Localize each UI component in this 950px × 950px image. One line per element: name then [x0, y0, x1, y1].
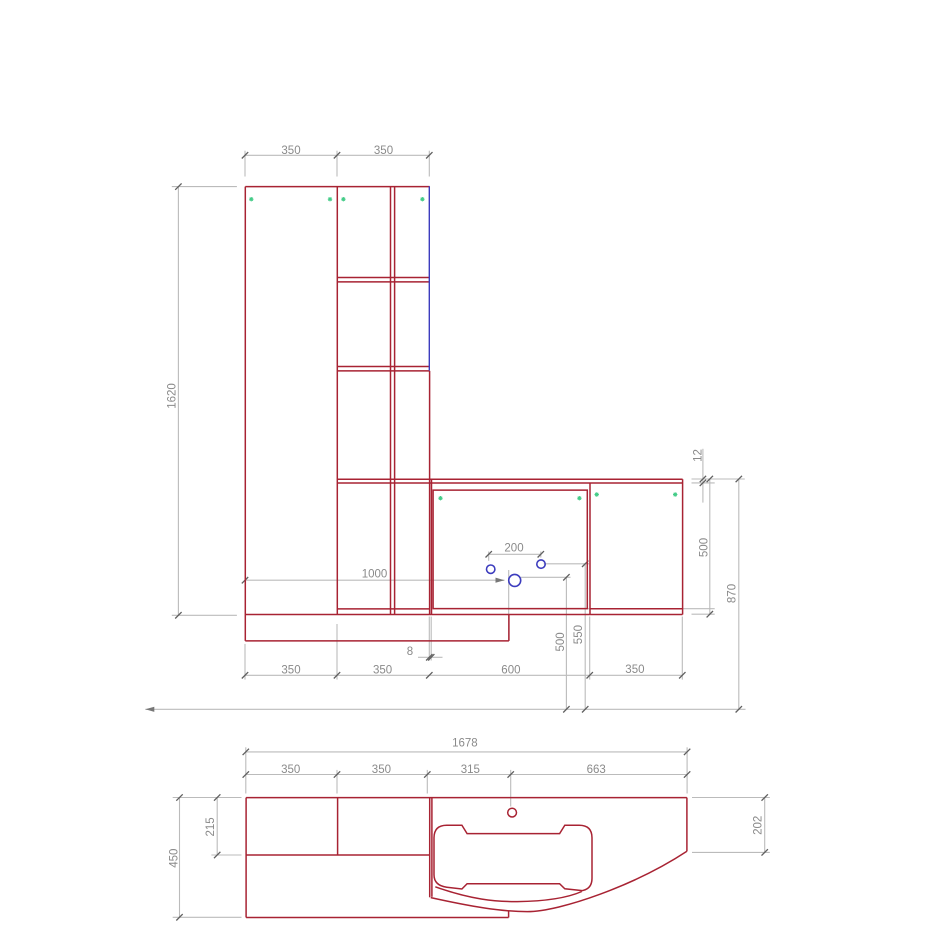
svg-text:350: 350 — [625, 664, 644, 676]
svg-text:350: 350 — [281, 664, 300, 676]
svg-text:350: 350 — [374, 145, 393, 157]
svg-text:350: 350 — [373, 664, 392, 676]
svg-text:450: 450 — [169, 849, 181, 868]
svg-text:350: 350 — [281, 145, 300, 157]
svg-text:215: 215 — [205, 817, 217, 836]
svg-text:202: 202 — [752, 816, 764, 835]
svg-text:1620: 1620 — [167, 383, 179, 409]
svg-text:600: 600 — [501, 665, 520, 677]
svg-text:12: 12 — [692, 449, 704, 462]
svg-text:550: 550 — [573, 625, 585, 644]
svg-text:8: 8 — [407, 646, 413, 658]
svg-text:1678: 1678 — [452, 737, 478, 749]
svg-text:500: 500 — [555, 632, 567, 651]
svg-text:663: 663 — [587, 764, 606, 776]
svg-text:500: 500 — [698, 538, 710, 557]
svg-text:1000: 1000 — [362, 568, 388, 580]
svg-text:350: 350 — [372, 764, 391, 776]
svg-text:870: 870 — [726, 584, 738, 603]
svg-text:200: 200 — [504, 542, 523, 554]
svg-text:315: 315 — [461, 764, 480, 776]
svg-text:350: 350 — [281, 764, 300, 776]
